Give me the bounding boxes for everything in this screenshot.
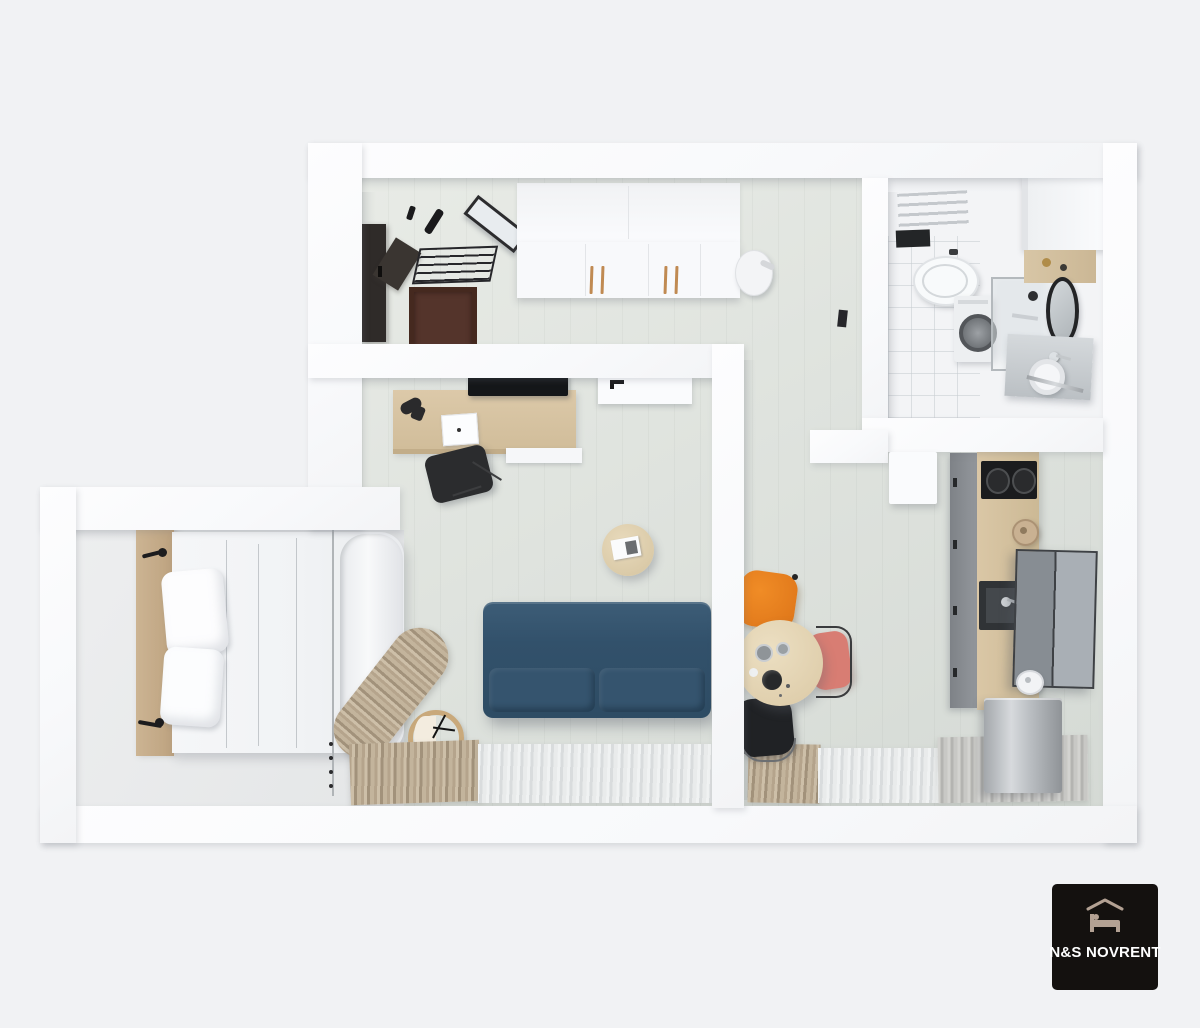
sofa-cushion: [599, 668, 705, 712]
drawer-unit: [506, 448, 582, 463]
floor-plan-render: N&S NOVRENT: [0, 0, 1200, 1028]
wall-right: [1103, 143, 1137, 843]
magazine-photo: [625, 540, 638, 555]
brand-name: N&S NOVRENT: [1049, 944, 1160, 961]
wall-cabinets: [1012, 549, 1098, 689]
light-switch: [837, 310, 848, 328]
pillow: [159, 646, 224, 728]
wall-hall-living: [308, 344, 737, 378]
cup: [755, 644, 773, 662]
cabinet-handle: [953, 606, 957, 615]
curtain-sheer: [478, 744, 714, 803]
chair-leg-dot: [792, 574, 798, 580]
kettle-lid: [1020, 527, 1027, 534]
pillow: [160, 567, 229, 656]
wall-top: [308, 143, 1137, 178]
brand-logo: N&S NOVRENT: [1052, 884, 1158, 990]
wall-bathroom-bottom: [862, 418, 1103, 452]
wall-sconce: [158, 548, 167, 557]
kitchen-sink-basin: [986, 588, 1015, 623]
cabinet-handle: [953, 478, 957, 487]
shoe-rack: [412, 246, 498, 285]
dark-item: [1060, 264, 1067, 271]
wardrobe-seam: [585, 244, 586, 296]
crumbs: [786, 684, 790, 688]
wall-kitchen-top-segment: [810, 430, 888, 463]
toilet-flush-button: [949, 249, 958, 255]
curtain-ring: [329, 784, 333, 788]
wall-living-kitchen: [712, 344, 744, 808]
crumbs: [779, 694, 782, 697]
wall-sconce: [155, 718, 164, 727]
wardrobe-seam: [628, 186, 629, 239]
curtain-sheer: [818, 748, 940, 803]
burner: [1012, 468, 1036, 494]
curtain-ring: [329, 756, 333, 760]
fridge: [984, 698, 1062, 793]
wall-alcove-top: [40, 487, 400, 530]
wardrobe-seam: [700, 244, 701, 296]
towel-radiator: [897, 190, 969, 230]
curtain-ring: [329, 770, 333, 774]
portable-vacuum: [735, 250, 773, 296]
duvet-crease: [258, 544, 259, 746]
duvet-crease: [296, 538, 297, 748]
tall-cabinet: [1022, 176, 1106, 250]
cabinet-handle: [953, 540, 957, 549]
white-kettle-lid: [1025, 677, 1031, 683]
curtain-beige: [349, 740, 481, 805]
washer-panel: [958, 300, 988, 304]
toilet-seat: [922, 264, 968, 298]
entry-door-handle: [378, 266, 382, 277]
entry-door: [362, 224, 386, 342]
cup: [776, 642, 790, 656]
sofa-cushion: [489, 668, 595, 712]
bowl: [762, 670, 782, 690]
bathroom-door-leaf: [889, 452, 937, 504]
brass-item: [1042, 258, 1051, 267]
shower-head: [1028, 291, 1038, 301]
wardrobe-lower: [517, 242, 740, 298]
laptop-dot: [457, 428, 461, 432]
door-handle: [610, 380, 614, 389]
napkin: [749, 668, 758, 677]
wall-left-upper: [308, 143, 362, 530]
curtain-ring: [329, 742, 333, 746]
wall-alcove-left: [40, 487, 76, 843]
white-kettle: [1016, 670, 1044, 695]
burner: [986, 468, 1010, 494]
wall-bottom: [40, 806, 1137, 843]
wall-shelf: [896, 229, 931, 247]
cabinet-handle: [953, 668, 957, 677]
bed-under-roof-icon: [1081, 896, 1129, 938]
round-mirror: [1046, 277, 1079, 345]
wall-bathroom-left: [862, 178, 888, 432]
wardrobe-seam: [648, 244, 649, 296]
